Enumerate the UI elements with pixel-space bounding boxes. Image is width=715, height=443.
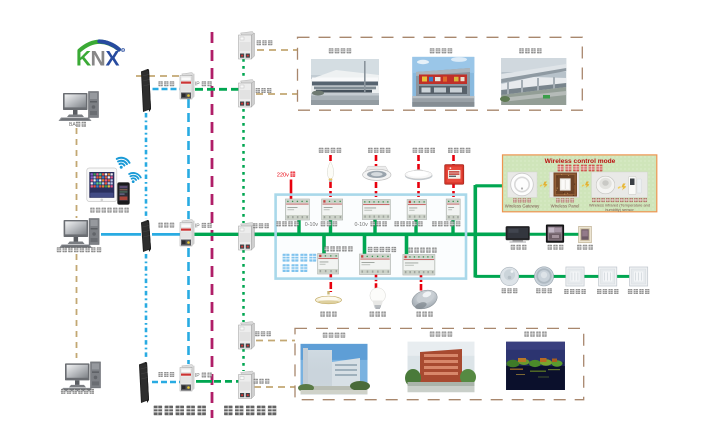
svg-text:IP: IP bbox=[195, 373, 200, 379]
svg-text:R: R bbox=[122, 48, 125, 53]
svg-text:IP: IP bbox=[195, 223, 200, 229]
svg-text:N: N bbox=[91, 48, 106, 71]
svg-text:X: X bbox=[106, 48, 120, 71]
svg-text:0-10v: 0-10v bbox=[355, 222, 369, 228]
svg-text:Wireless control mode: Wireless control mode bbox=[545, 158, 616, 165]
svg-text:220v: 220v bbox=[277, 172, 289, 178]
svg-text:Wireless Panel: Wireless Panel bbox=[551, 203, 580, 208]
svg-text:K: K bbox=[76, 48, 91, 71]
svg-text:BA: BA bbox=[69, 122, 76, 128]
svg-text:Wireless Gateway: Wireless Gateway bbox=[505, 203, 540, 208]
svg-text:IP: IP bbox=[195, 82, 200, 88]
svg-text:0-10v: 0-10v bbox=[305, 222, 319, 228]
svg-text:humidity) sensor: humidity) sensor bbox=[605, 207, 634, 212]
